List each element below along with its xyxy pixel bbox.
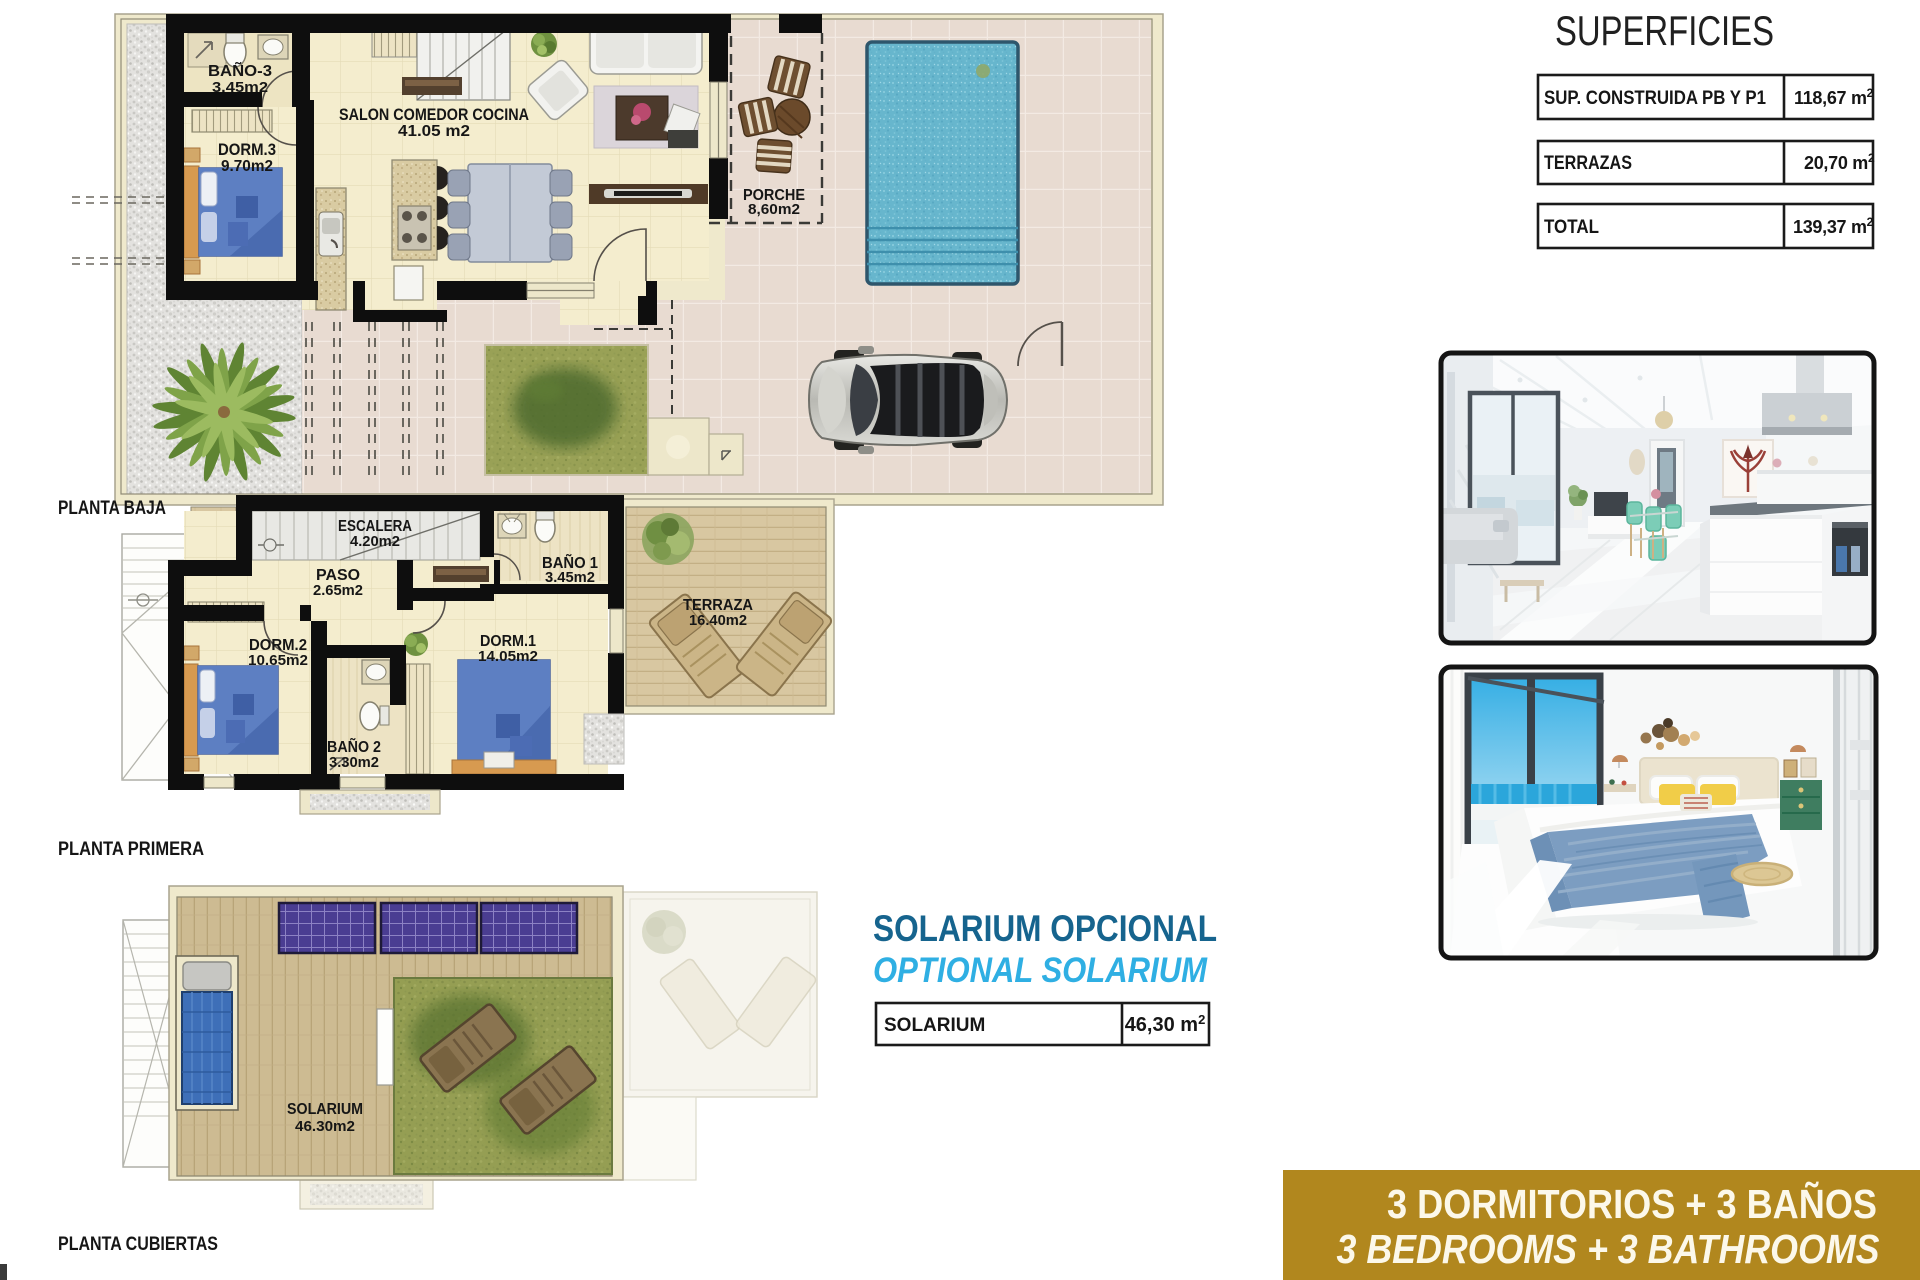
svg-text:BAÑO 2: BAÑO 2 — [327, 738, 381, 756]
svg-text:DORM.3: DORM.3 — [218, 141, 276, 159]
svg-text:PASO: PASO — [316, 567, 360, 584]
svg-text:SOLARIUM: SOLARIUM — [884, 1015, 985, 1036]
svg-text:4.20m2: 4.20m2 — [350, 534, 400, 550]
svg-text:OPTIONAL SOLARIUM: OPTIONAL SOLARIUM — [873, 951, 1208, 990]
svg-text:ESCALERA: ESCALERA — [338, 518, 412, 535]
svg-text:TERRAZAS: TERRAZAS — [1544, 153, 1632, 174]
svg-text:TERRAZA: TERRAZA — [683, 597, 753, 614]
svg-text:16.40m2: 16.40m2 — [689, 613, 747, 629]
svg-text:PLANTA PRIMERA: PLANTA PRIMERA — [58, 839, 204, 860]
svg-text:8,60m2: 8,60m2 — [748, 202, 800, 218]
svg-text:14.05m2: 14.05m2 — [478, 648, 538, 665]
svg-text:20,70 m2: 20,70 m2 — [1804, 151, 1875, 173]
svg-text:3.30m2: 3.30m2 — [329, 755, 379, 771]
svg-text:10.65m2: 10.65m2 — [248, 652, 308, 669]
svg-text:SUP. CONSTRUIDA PB Y P1: SUP. CONSTRUIDA PB Y P1 — [1544, 88, 1766, 109]
svg-text:3 DORMITORIOS + 3 BAÑOS: 3 DORMITORIOS + 3 BAÑOS — [1387, 1181, 1877, 1227]
svg-text:3.45m2: 3.45m2 — [212, 79, 268, 96]
svg-text:46,30 m2: 46,30 m2 — [1125, 1012, 1206, 1036]
svg-text:SUPERFICIES: SUPERFICIES — [1555, 7, 1774, 54]
svg-text:9.70m2: 9.70m2 — [221, 158, 273, 175]
svg-text:SOLARIUM OPCIONAL: SOLARIUM OPCIONAL — [873, 908, 1217, 949]
svg-text:41.05 m2: 41.05 m2 — [398, 123, 470, 140]
svg-text:SALON COMEDOR COCINA: SALON COMEDOR COCINA — [339, 105, 529, 124]
svg-text:PLANTA BAJA: PLANTA BAJA — [58, 498, 166, 519]
svg-text:46.30m2: 46.30m2 — [295, 1118, 355, 1135]
svg-text:SOLARIUM: SOLARIUM — [287, 1101, 363, 1118]
svg-text:3 BEDROOMS + 3 BATHROOMS: 3 BEDROOMS + 3 BATHROOMS — [1337, 1226, 1880, 1272]
svg-text:BAÑO-3: BAÑO-3 — [208, 60, 272, 80]
svg-text:139,37 m2: 139,37 m2 — [1793, 215, 1874, 237]
svg-text:3.45m2: 3.45m2 — [545, 570, 595, 586]
svg-text:PLANTA CUBIERTAS: PLANTA CUBIERTAS — [58, 1234, 218, 1255]
svg-text:2.65m2: 2.65m2 — [313, 583, 363, 599]
svg-text:TOTAL: TOTAL — [1544, 217, 1599, 238]
svg-text:118,67 m2: 118,67 m2 — [1794, 86, 1874, 108]
